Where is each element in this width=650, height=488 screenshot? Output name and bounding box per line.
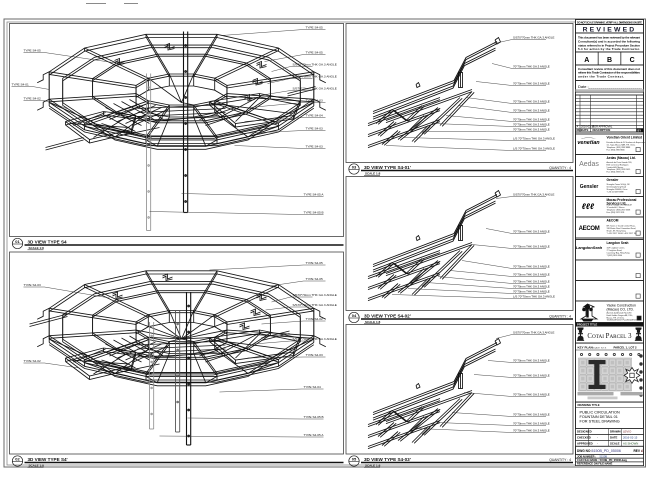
svg-text:5150B: 5150B [600,454,608,458]
svg-text:SCALE: SCALE [610,442,620,446]
svg-text:REFERENCE ON FILE NAME: REFERENCE ON FILE NAME [577,462,613,466]
svg-text:LangdonSeah: LangdonSeah [576,245,603,250]
svg-text:TYPE S4-05 B: TYPE S4-05 B [304,211,324,215]
svg-text:L/S 70*70mm THK GA.3 ANGLE: L/S 70*70mm THK GA.3 ANGLE [513,147,555,151]
svg-text:QUANTITY : 4: QUANTITY : 4 [549,458,571,462]
svg-text:70*70mm THK GA.3 ANGLE: 70*70mm THK GA.3 ANGLE [513,100,550,104]
svg-text:A: A [577,125,579,129]
svg-text:70*70mm THK GA.3 ANGLE: 70*70mm THK GA.3 ANGLE [513,285,550,289]
svg-text:TYPE S4-04: TYPE S4-04 [304,385,321,389]
svg-text:3D VIEW TYPE S4-02': 3D VIEW TYPE S4-02' [364,313,411,318]
svg-text:FOR STEEL DRAWING: FOR STEEL DRAWING [580,420,620,424]
svg-text:BY: BY [638,128,642,132]
svg-text:70*70mm THK GA.3 ANGLE: 70*70mm THK GA.3 ANGLE [513,109,550,113]
svg-text:Aedas (Macau) Ltd.: Aedas (Macau) Ltd. [607,156,636,160]
svg-text:DESIGNED: DESIGNED [577,430,592,434]
svg-text:SCALE 1:8: SCALE 1:8 [365,320,381,324]
svg-text:PARCEL 1, LOT 2: PARCEL 1, LOT 2 [614,346,637,350]
svg-text:TYPE S4-05 A: TYPE S4-05 A [304,193,325,197]
svg-text:70*70mm THK GA.3 ANGLE: 70*70mm THK GA.3 ANGLE [513,118,550,122]
svg-text:S/S70*70mm THK GA.3 ANGLE: S/S70*70mm THK GA.3 ANGLE [293,75,337,79]
svg-text:Date :: Date : [578,84,589,89]
svg-text:TYPE S4-05 B: TYPE S4-05 B [304,415,324,419]
svg-text:5150B_PD_05006: 5150B_PD_05006 [592,449,621,453]
svg-text:04: 04 [352,313,357,318]
svg-text:TYPE S4-02: TYPE S4-02 [24,359,41,363]
svg-text:TYPE S4-05 A: TYPE S4-05 A [304,433,325,437]
svg-text:03: 03 [352,165,357,170]
svg-text:TYPE S4-01: TYPE S4-01 [12,83,29,87]
svg-text:70*70mm THK GA.3 ANGLE: 70*70mm THK GA.3 ANGLE [513,429,550,433]
svg-text:S/S70*70mm THK GA.3 ANGLE: S/S70*70mm THK GA.3 ANGLE [513,331,554,335]
svg-text:ℓℓℓ: ℓℓℓ [582,202,595,211]
svg-text:Venetian Orient Limited: Venetian Orient Limited [607,136,643,140]
svg-text:SCALE 1:8: SCALE 1:8 [365,464,381,468]
svg-text:REVIEWED: REVIEWED [583,26,637,33]
svg-text:SCALE 1:8: SCALE 1:8 [29,464,45,468]
svg-text:L/S 70*70mm THK GA.3 ANGLE: L/S 70*70mm THK GA.3 ANGLE [513,295,555,299]
svg-text:70*70mm THK GA.3 ANGLE: 70*70mm THK GA.3 ANGLE [513,230,550,234]
svg-text:COTAI PARCEL 3: COTAI PARCEL 3 [587,333,632,340]
svg-text:3D VIEW TYPE S4: 3D VIEW TYPE S4 [28,239,68,244]
svg-text:3D VIEW TYPE S4-03': 3D VIEW TYPE S4-03' [364,457,411,462]
svg-text:T +852 2317 7000 F +852 2317: T +852 2317 7000 F +852 2317 7609 [607,233,638,235]
svg-text:JOB NUMBER :: JOB NUMBER : [577,454,596,458]
svg-text:S/S70*70mm THK GA.3 ANGLE: S/S70*70mm THK GA.3 ANGLE [513,36,554,40]
svg-text:PUBLIC CIRCULATION: PUBLIC CIRCULATION [580,411,620,415]
svg-text:3D VIEW TYPE S4-01': 3D VIEW TYPE S4-01' [364,165,411,170]
svg-text:LEVIO: LEVIO [623,430,632,434]
svg-text:DWG NO :: DWG NO : [577,449,592,453]
svg-text:70*70mm THK GA.3 ANGLE: 70*70mm THK GA.3 ANGLE [513,290,550,294]
svg-text:CHECKED: CHECKED [577,436,591,440]
svg-text:TYPE S4-03: TYPE S4-03 [306,145,323,149]
svg-text:01: 01 [15,239,20,244]
svg-text:FOR APPROVAL: FOR APPROVAL [593,125,613,129]
svg-text:AS SHOWN: AS SHOWN [623,442,638,446]
svg-text:70*70mm THK GA.3 ANGLE: 70*70mm THK GA.3 ANGLE [513,374,550,378]
svg-text:FOUNTAIN DETAIL 01: FOUNTAIN DETAIL 01 [580,415,618,419]
svg-text:A: A [584,57,589,64]
svg-text:Fax: (853) 2882 8666: Fax: (853) 2882 8666 [607,149,625,151]
svg-text:C: C [630,57,635,64]
svg-text:T (852) 2830 3500: T (852) 2830 3500 [607,255,623,257]
svg-text:S/S70*70mm THK GA.3 ANGLE: S/S70*70mm THK GA.3 ANGLE [513,193,554,197]
svg-text:70*70mm THK GA.3 ANGLE: 70*70mm THK GA.3 ANGLE [513,128,550,132]
svg-text:TYPE S4-02: TYPE S4-02 [24,97,41,101]
svg-text:TYPE S4-03: TYPE S4-03 [306,127,323,131]
svg-text:70*70mm THK GA.3 ANGLE: 70*70mm THK GA.3 ANGLE [513,422,550,426]
svg-text:AECOM: AECOM [579,226,600,232]
svg-text:TYPE S4-05: TYPE S4-05 [306,261,323,265]
svg-text:70*70mm THK GA.3 ANGLE: 70*70mm THK GA.3 ANGLE [513,123,550,127]
svg-text:70*70mm THK GA.3 ANGLE: 70*70mm THK GA.3 ANGLE [513,265,550,269]
svg-text:DRAWN: DRAWN [610,430,621,434]
svg-text:TYPE S4-04: TYPE S4-04 [306,114,323,118]
svg-text:venetian: venetian [577,140,600,146]
svg-text:under the Trade Contract.: under the Trade Contract. [578,75,624,79]
svg-text:SCALE 1:8: SCALE 1:8 [365,172,381,176]
svg-text:TYPE S4-05: TYPE S4-05 [24,49,41,53]
svg-text:S/S70*70mm THK GA.3 ANGLE: S/S70*70mm THK GA.3 ANGLE [293,87,337,91]
svg-text:(Macau) CO, LTD.: (Macau) CO, LTD. [607,308,635,312]
svg-text:APPROVED: APPROVED [577,442,593,446]
svg-text:S/S70*70mm THK GA.3 ANGLE: S/S70*70mm THK GA.3 ANGLE [293,303,337,307]
svg-text:TYPE S4-05: TYPE S4-05 [306,277,323,281]
svg-text:70*70mm THK GA.3 ANGLE: 70*70mm THK GA.3 ANGLE [513,245,550,249]
svg-text:SCALE: N.T.S: SCALE: N.T.S [593,347,607,350]
svg-text:B: B [607,57,612,64]
svg-text:DATE: DATE [610,436,618,440]
svg-text:-: - [597,442,598,446]
svg-text:3D VIEW TYPE S4': 3D VIEW TYPE S4' [28,457,68,462]
svg-text:TYPE S4-05: TYPE S4-05 [306,51,323,55]
svg-text:TYPE S4-03: TYPE S4-03 [306,353,323,357]
svg-text:TYPE S4-02: TYPE S4-02 [306,317,323,321]
svg-text:70*70mm THK GA.3 ANGLE: 70*70mm THK GA.3 ANGLE [513,413,550,417]
svg-text:Fax: (853) 2872 3311: Fax: (853) 2872 3311 [607,212,625,214]
svg-text:Tel:(853)28725519 Fax:(853)28: Tel:(853)28725519 Fax:(853)28725529 [607,320,640,322]
svg-text:TYPE S4-03: TYPE S4-03 [306,99,323,103]
svg-text:70*70mm THK GA.3 ANGLE: 70*70mm THK GA.3 ANGLE [513,280,550,284]
svg-text:70*70mm THK GA.3 ANGLE: 70*70mm THK GA.3 ANGLE [513,273,550,277]
svg-text:Gensler: Gensler [607,178,620,182]
svg-text:70*70mm THK GA.3 ANGLE: 70*70mm THK GA.3 ANGLE [513,82,550,86]
svg-text:S/S70*70mm THK GA.3 ANGLE: S/S70*70mm THK GA.3 ANGLE [293,63,337,67]
svg-text:L/S 70*70mm THK GA.3 ANGLE: L/S 70*70mm THK GA.3 ANGLE [513,137,555,141]
svg-text:S/S70*70mm THK GA.3 ANGLE: S/S70*70mm THK GA.3 ANGLE [293,293,337,297]
svg-text:QUANTITY : 4: QUANTITY : 4 [549,314,571,318]
svg-text:5.4 for action by the Tra: 5.4 for action by the Trade Contractor. [578,47,640,51]
svg-text:70*70mm THK GA.3 ANGLE: 70*70mm THK GA.3 ANGLE [513,359,550,363]
svg-text:DO NOT SCALE DRAWING, VERIFY A: DO NOT SCALE DRAWING, VERIFY ALL DIMENSI… [577,20,642,24]
svg-text:DRAWING TITLE: DRAWING TITLE [578,403,600,407]
svg-text:QUANTITY : 4: QUANTITY : 4 [549,166,571,170]
svg-text:-: - [597,436,598,440]
svg-text:02: 02 [15,457,20,462]
svg-text:CAD FILE NAME : 5150B_PD_050: CAD FILE NAME : 5150B_PD_05006.dwg [577,458,627,462]
svg-text:KEY PLAN: KEY PLAN [578,346,593,350]
svg-text:2016-02-15: 2016-02-15 [623,436,638,440]
svg-text:S/S70*70mm THK GA.3 ANGLE: S/S70*70mm THK GA.3 ANGLE [293,337,337,341]
svg-text:TYPE S4-03: TYPE S4-03 [24,283,41,287]
svg-text:Gensler: Gensler [580,184,599,190]
svg-text:Fax: (853) 2833 1211: Fax: (853) 2833 1211 [607,172,625,174]
svg-text:70*70mm THK GA.3 ANGLE: 70*70mm THK GA.3 ANGLE [513,393,550,397]
svg-text:TYPE S4-05: TYPE S4-05 [306,26,323,30]
svg-text:AECOM: AECOM [607,219,619,223]
svg-text:70*70mm THK GA.3 ANGLE: 70*70mm THK GA.3 ANGLE [513,65,550,69]
svg-text:Langdon Seah: Langdon Seah [607,241,629,245]
svg-text:05: 05 [352,457,357,462]
svg-text:Aedas: Aedas [579,161,599,168]
svg-text:SCALE 1:8: SCALE 1:8 [29,246,45,250]
svg-text:T +86 21 6087 6888: T +86 21 6087 6888 [607,191,624,193]
